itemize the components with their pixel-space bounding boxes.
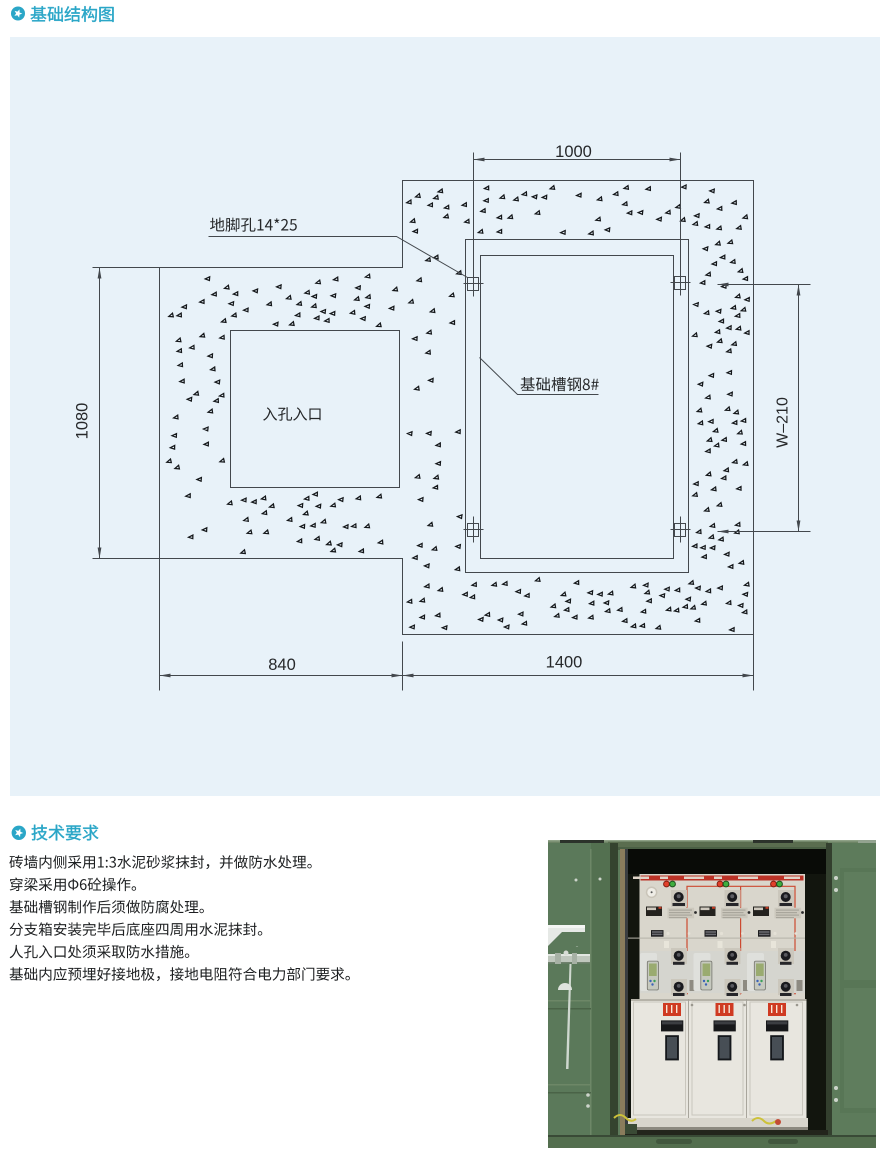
svg-text:840: 840 bbox=[268, 656, 296, 674]
svg-text:1400: 1400 bbox=[546, 654, 583, 672]
svg-text:W–210: W–210 bbox=[775, 397, 792, 448]
svg-text:1000: 1000 bbox=[555, 143, 592, 161]
svg-text:1080: 1080 bbox=[74, 403, 92, 440]
